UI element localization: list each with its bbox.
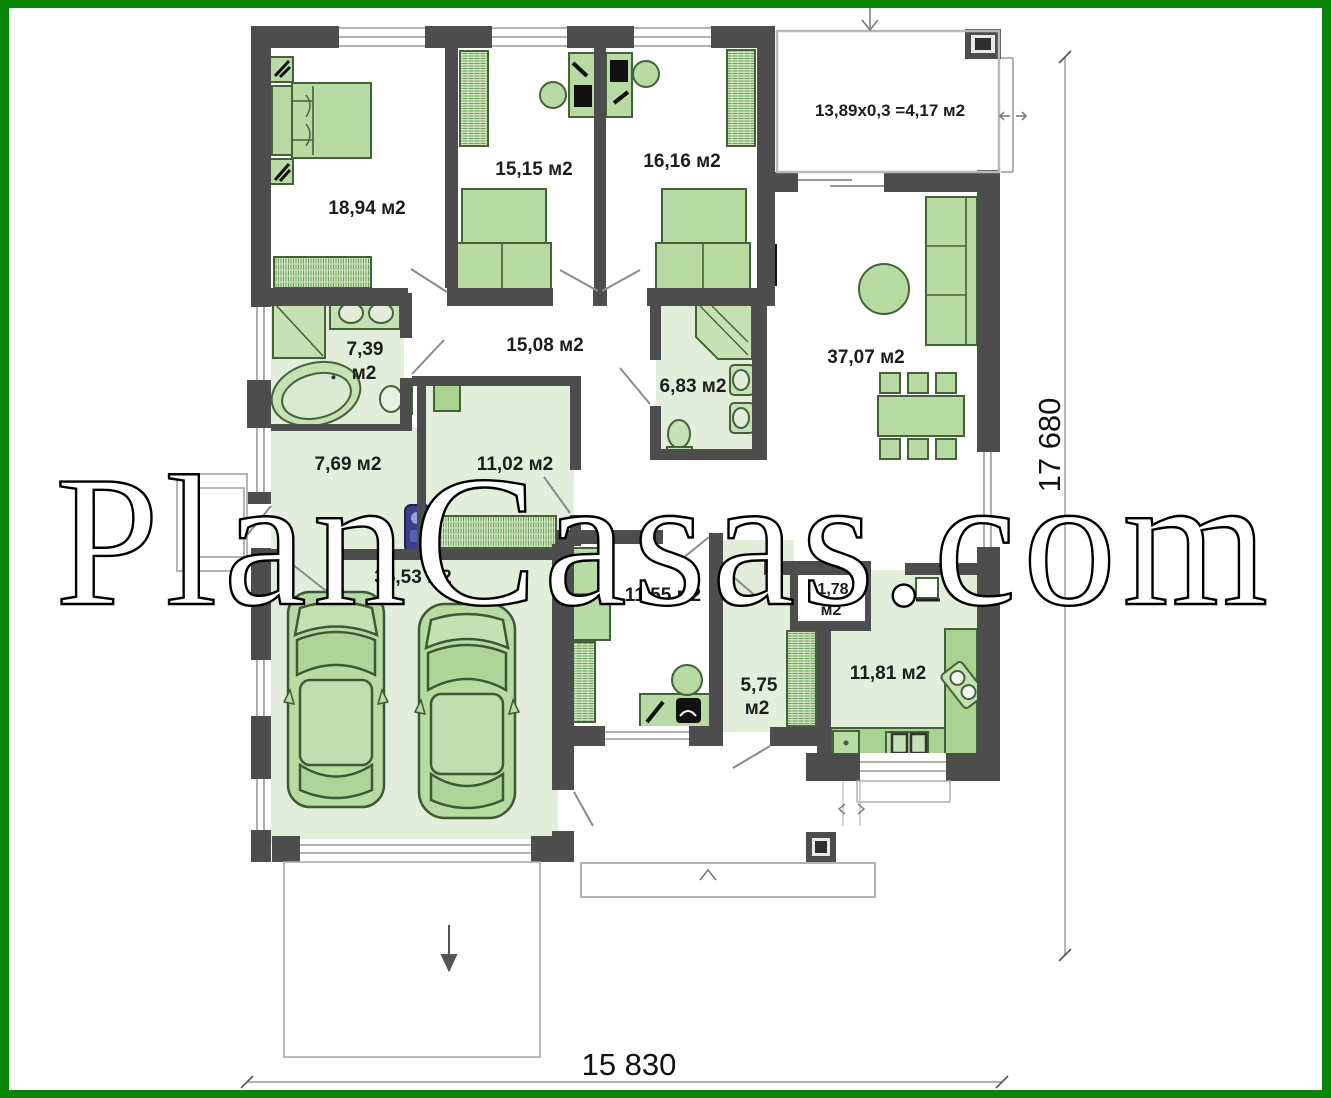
svg-text:м2: м2	[352, 363, 377, 384]
svg-text:37,07 м2: 37,07 м2	[827, 347, 904, 368]
svg-text:6,83 м2: 6,83 м2	[660, 376, 727, 397]
svg-text:13,89x0,3 =4,17 м2: 13,89x0,3 =4,17 м2	[815, 101, 965, 120]
svg-text:15 830: 15 830	[582, 1047, 677, 1082]
svg-text:5,75: 5,75	[741, 675, 778, 696]
svg-text:7,39: 7,39	[347, 339, 384, 360]
svg-text:18,94 м2: 18,94 м2	[328, 198, 405, 219]
svg-text:16,16 м2: 16,16 м2	[643, 151, 720, 172]
svg-text:PlanCasas.com: PlanCasas.com	[55, 438, 1274, 645]
svg-text:15,15 м2: 15,15 м2	[495, 159, 572, 180]
svg-text:м2: м2	[745, 698, 770, 719]
svg-text:11,81 м2: 11,81 м2	[850, 663, 926, 684]
svg-text:15,08 м2: 15,08 м2	[506, 335, 583, 356]
